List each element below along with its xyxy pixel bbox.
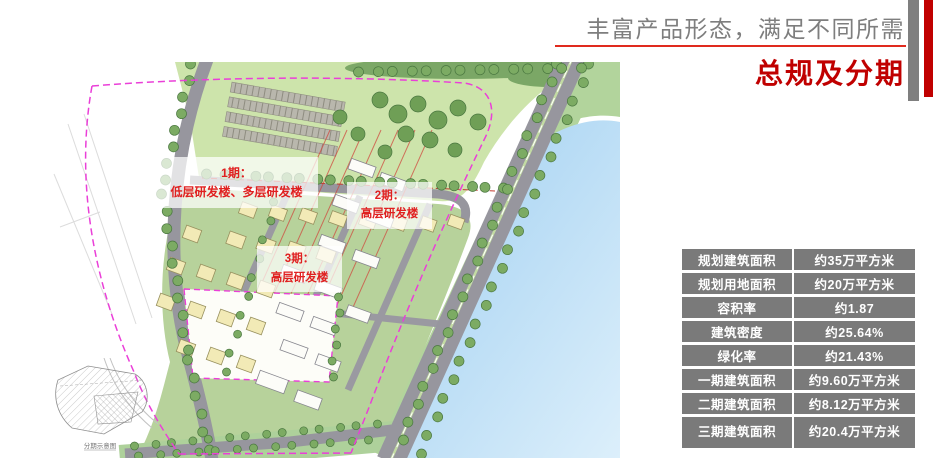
inset-caption: 分期示意图 <box>84 441 117 450</box>
row-value: 约9.60万平方米 <box>794 369 915 390</box>
row-label: 建筑密度 <box>682 321 792 342</box>
phase3-title: 3期： <box>285 254 314 266</box>
site-plan-map: 1期： 低层研发楼、多层研发楼 2期： 高层研发楼 3期： 高层研发楼 分期示意 <box>40 62 620 458</box>
accent-bar-gray <box>908 0 919 101</box>
row-label: 一期建筑面积 <box>682 369 792 390</box>
row-label: 绿化率 <box>682 345 792 366</box>
table-row: 一期建筑面积 约9.60万平方米 <box>682 369 915 390</box>
table-row: 建筑密度 约25.64% <box>682 321 915 342</box>
accent-bar-red <box>924 0 933 97</box>
phase3-desc: 高层研发楼 <box>271 273 329 285</box>
table-row: 三期建筑面积 约20.4万平方米 <box>682 417 915 448</box>
table-row: 容积率 约1.87 <box>682 297 915 318</box>
row-value: 约20万平方米 <box>794 273 915 294</box>
row-label: 规划用地面积 <box>682 273 792 294</box>
row-label: 二期建筑面积 <box>682 393 792 414</box>
phase2-desc: 高层研发楼 <box>361 209 419 221</box>
page-title: 总规及分期 <box>755 52 905 92</box>
row-value: 约20.4万平方米 <box>794 417 915 448</box>
row-label: 规划建筑面积 <box>682 249 792 270</box>
table-row: 规划用地面积 约20万平方米 <box>682 273 915 294</box>
table-row: 二期建筑面积 约8.12万平方米 <box>682 393 915 414</box>
slide-subtitle: 丰富产品形态，满足不同所需 <box>587 10 906 44</box>
phase1-title: 1期： <box>221 167 252 179</box>
phase3-label: 3期： 高层研发楼 <box>257 246 342 292</box>
phase1-label: 1期： 低层研发楼、多层研发楼 <box>155 157 318 208</box>
row-value: 约35万平方米 <box>794 249 915 270</box>
table-row: 绿化率 约21.43% <box>682 345 915 366</box>
row-value: 约1.87 <box>794 297 915 318</box>
phase2-title: 2期： <box>375 191 404 203</box>
table-row: 规划建筑面积 约35万平方米 <box>682 249 915 270</box>
phase2-label: 2期： 高层研发楼 <box>347 182 432 229</box>
inset-subarea <box>94 392 138 424</box>
row-value: 约25.64% <box>794 321 915 342</box>
row-value: 约8.12万平方米 <box>794 393 915 414</box>
title-underline <box>555 45 906 47</box>
row-value: 约21.43% <box>794 345 915 366</box>
reserved-parcel <box>184 289 338 382</box>
phase1-desc: 低层研发楼、多层研发楼 <box>170 186 302 198</box>
row-label: 三期建筑面积 <box>682 417 792 448</box>
phasing-inset-diagram: 分期示意图 <box>48 358 178 458</box>
planning-stats-table: 规划建筑面积 约35万平方米 规划用地面积 约20万平方米 容积率 约1.87 … <box>682 249 915 448</box>
row-label: 容积率 <box>682 297 792 318</box>
